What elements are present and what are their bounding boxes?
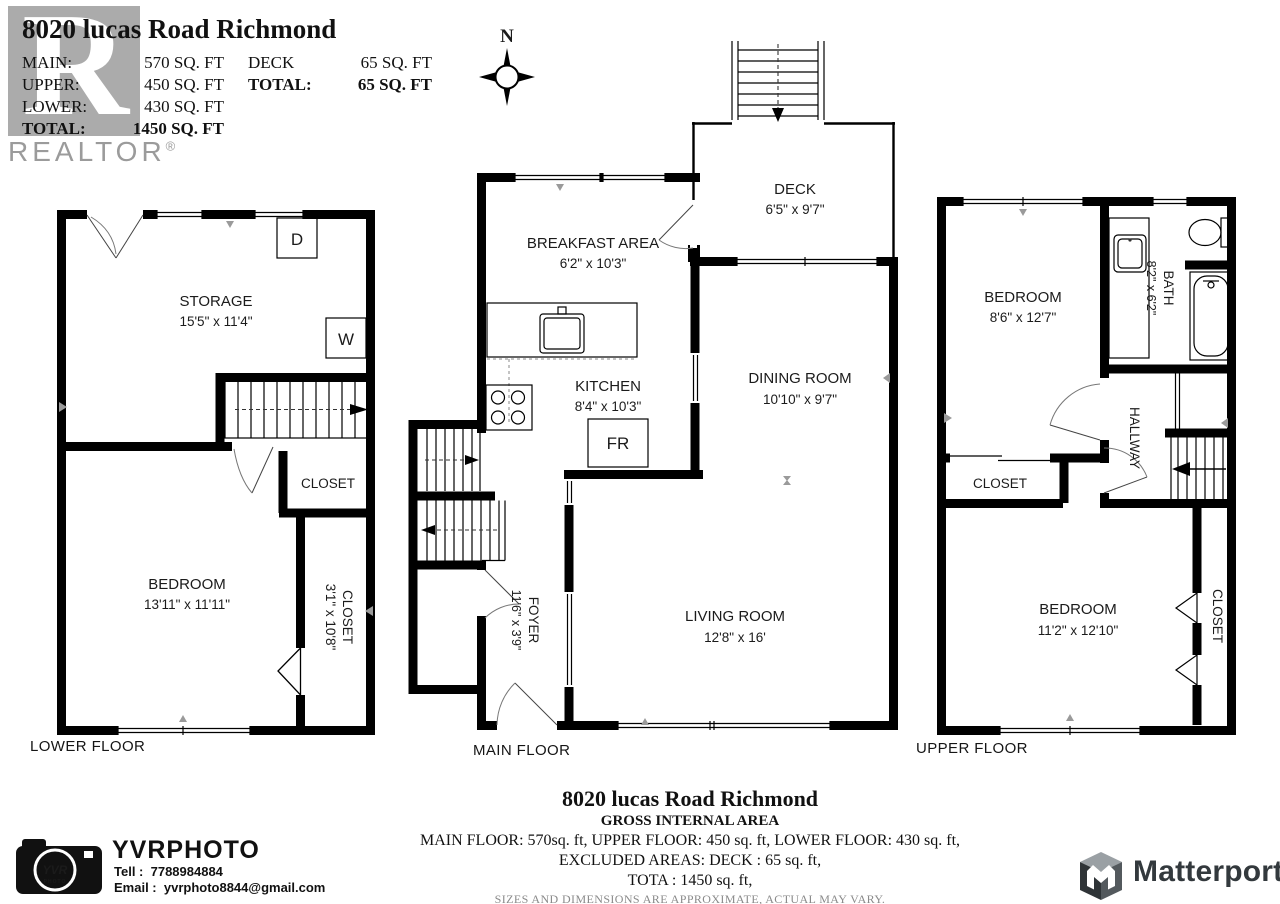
- bath-label: BATH: [1161, 270, 1176, 305]
- matterport-logo-icon: [1077, 850, 1125, 902]
- matterport-brand: Matterport: [1133, 855, 1280, 889]
- area-value: 570 SQ. FT: [144, 52, 224, 74]
- area-value: 430 SQ. FT: [144, 96, 224, 118]
- washer-label: W: [338, 330, 354, 349]
- tel-label: Tell :: [114, 864, 143, 879]
- area-row: LOWER:430 SQ. FT: [22, 96, 224, 118]
- stairs-down-arrow: [1172, 462, 1190, 476]
- lower-floor-plan: D W STORAGE 15'5" x 11'4" BEDROOM 13'11"…: [50, 202, 380, 762]
- storage-label: STORAGE: [179, 293, 252, 310]
- yvr-lens-subtext: PHOTO: [44, 879, 67, 885]
- area-label: DECK: [248, 52, 294, 74]
- main-floor-label: MAIN FLOOR: [473, 742, 570, 759]
- area-label: UPPER:: [22, 74, 80, 96]
- footer-line3: TOTA : 1450 sq. ft,: [340, 872, 1040, 890]
- yvrphoto-camera-icon: YVR PHOTO: [14, 834, 108, 898]
- footer-subtitle: GROSS INTERNAL AREA: [340, 813, 1040, 830]
- deck-label: DECK: [774, 181, 816, 198]
- area-table-col1: MAIN:570 SQ. FT UPPER:450 SQ. FT LOWER:4…: [22, 52, 224, 140]
- bedroom2-dims: 11'2" x 12'10": [1038, 623, 1119, 638]
- area-label: MAIN:: [22, 52, 72, 74]
- foyer-label: FOYER: [526, 597, 541, 644]
- closet1-label: CLOSET: [973, 476, 1027, 491]
- bedroom2-label: BEDROOM: [1039, 601, 1117, 618]
- foyer-label-group: FOYER 11'6" x 3'9": [509, 590, 541, 651]
- closet2-label: CLOSET: [340, 590, 355, 644]
- deck-dims: 6'5" x 9'7": [765, 202, 824, 217]
- closet-label: CLOSET: [301, 476, 355, 491]
- lower-floor-label: LOWER FLOOR: [30, 738, 145, 755]
- footer-disclaimer: SIZES AND DIMENSIONS ARE APPROXIMATE, AC…: [340, 892, 1040, 904]
- realtor-text: REALTOR: [8, 136, 166, 167]
- bathtub: [1190, 272, 1232, 360]
- dining-label: DINING ROOM: [748, 370, 851, 387]
- bath-dims: 8'2" x 6'2": [1144, 261, 1158, 316]
- storage-dims: 15'5" x 11'4": [179, 314, 252, 329]
- closet2-label: CLOSET: [1210, 589, 1225, 643]
- bath-label-group: BATH 8'2" x 6'2": [1144, 261, 1176, 316]
- area-label: LOWER:: [22, 96, 87, 118]
- closet2-dims: 3'1" x 10'8": [323, 584, 338, 651]
- stairs-up-arrow: [350, 404, 368, 415]
- tel-number: 7788984884: [151, 864, 223, 879]
- floorplan-page: R 8020 lucas Road Richmond MAIN:570 SQ. …: [0, 0, 1280, 904]
- yvr-lens-text: YVR: [43, 863, 68, 877]
- footer-line1: MAIN FLOOR: 570sq. ft, UPPER FLOOR: 450 …: [340, 832, 1040, 850]
- hallway-label: HALLWAY: [1127, 407, 1142, 469]
- bedroom1-dims: 8'6" x 12'7": [990, 310, 1057, 325]
- kitchen-dims: 8'4" x 10'3": [575, 399, 642, 414]
- dining-dims: 10'10" x 9'7": [763, 392, 837, 407]
- foyer-dims: 11'6" x 3'9": [509, 590, 523, 651]
- area-row: UPPER:450 SQ. FT: [22, 74, 224, 96]
- area-label: TOTAL:: [248, 74, 312, 96]
- toilet-bowl: [1189, 220, 1221, 246]
- area-value: 450 SQ. FT: [144, 74, 224, 96]
- deck-stairs-down-arrow: [772, 108, 784, 122]
- living-label: LIVING ROOM: [685, 608, 785, 625]
- fridge-label: FR: [607, 434, 630, 453]
- yvrphoto-brand: YVRPHOTO: [112, 836, 260, 865]
- email-address: yvrphoto8844@gmail.com: [164, 880, 326, 895]
- living-dims: 12'8" x 16': [704, 630, 766, 645]
- email-label: Email :: [114, 880, 157, 895]
- realtor-wordmark: REALTOR®: [8, 136, 175, 168]
- stairs-down-arrow: [421, 525, 435, 535]
- registered-mark: ®: [166, 139, 176, 154]
- main-floor-plan: FR DECK 6'5" x 9'7" BREAKFAST AREA 6'2" …: [405, 28, 910, 750]
- upper-floor-plan: BEDROOM 8'6" x 12'7" BATH 8'2" x 6'2" HA…: [928, 188, 1243, 748]
- breakfast-dims: 6'2" x 10'3": [560, 256, 627, 271]
- upper-floor-label: UPPER FLOOR: [916, 740, 1028, 757]
- yvrphoto-email: Email : yvrphoto8844@gmail.com: [114, 880, 325, 895]
- bedroom1-label: BEDROOM: [984, 289, 1062, 306]
- bedroom-dims: 13'11" x 11'11": [144, 597, 230, 612]
- footer-line2: EXCLUDED AREAS: DECK : 65 sq. ft,: [340, 852, 1040, 870]
- footer-title: 8020 lucas Road Richmond: [340, 786, 1040, 812]
- footer-summary: 8020 lucas Road Richmond GROSS INTERNAL …: [340, 786, 1040, 904]
- bedroom-label: BEDROOM: [148, 576, 226, 593]
- kitchen-label: KITCHEN: [575, 378, 641, 395]
- page-title: 8020 lucas Road Richmond: [22, 14, 336, 45]
- closet2-label-group: CLOSET 3'1" x 10'8": [323, 584, 355, 651]
- breakfast-label: BREAKFAST AREA: [527, 235, 659, 252]
- dryer-label: D: [291, 230, 303, 249]
- area-row: MAIN:570 SQ. FT: [22, 52, 224, 74]
- yvrphoto-tel: Tell : 7788984884: [114, 864, 223, 879]
